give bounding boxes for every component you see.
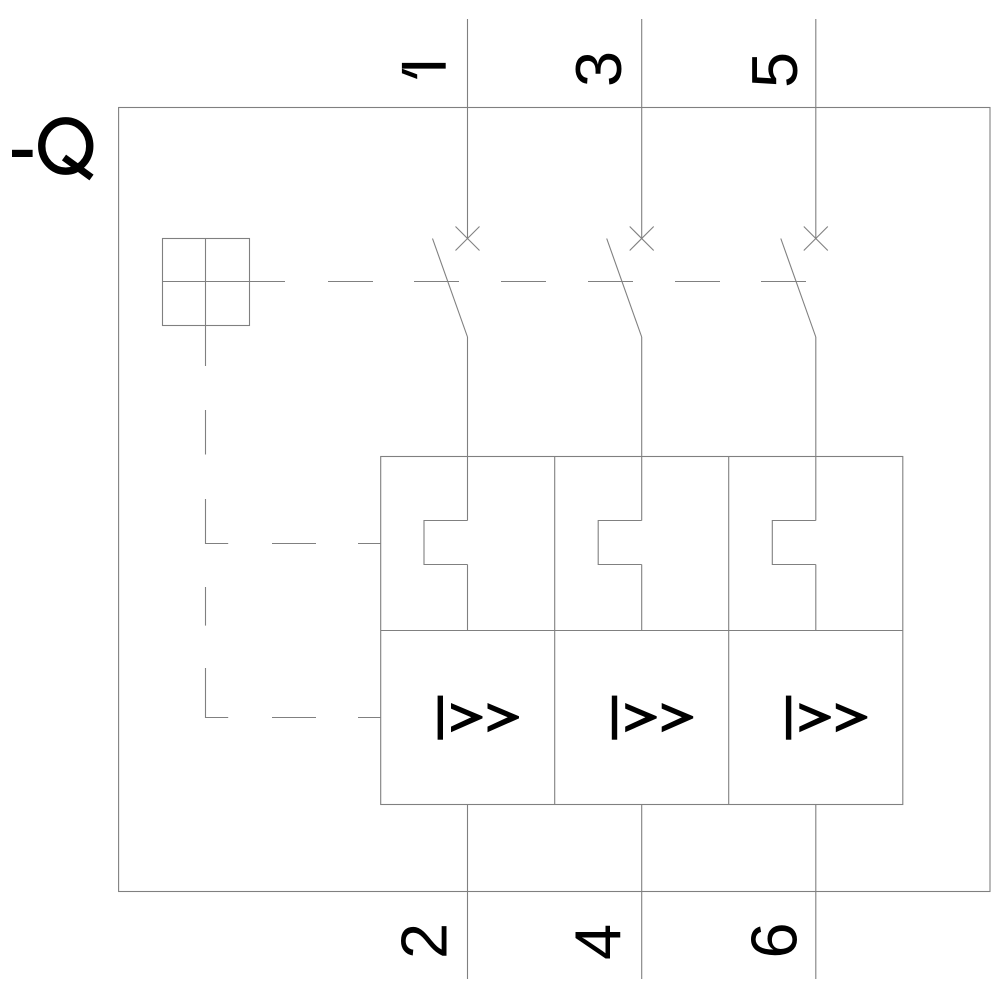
svg-text:2: 2 bbox=[387, 923, 460, 959]
svg-text:6: 6 bbox=[737, 922, 810, 958]
svg-text:5: 5 bbox=[738, 52, 811, 88]
svg-text:3: 3 bbox=[562, 51, 635, 87]
svg-text:4: 4 bbox=[561, 924, 634, 960]
